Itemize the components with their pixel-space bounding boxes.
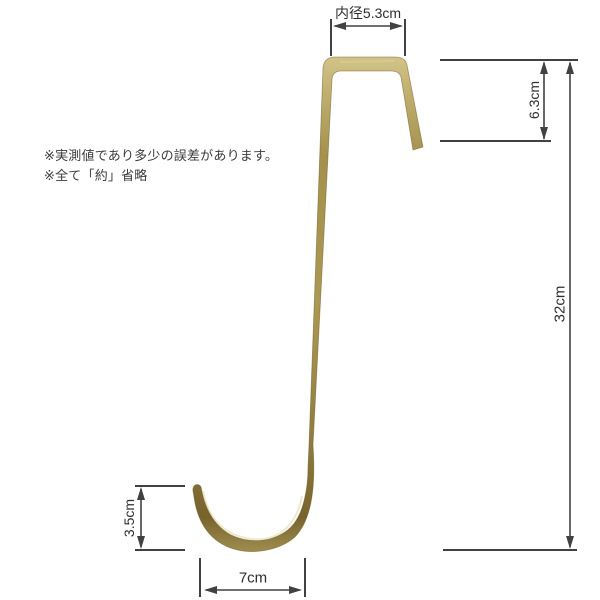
brass-highlight-top [340, 61, 394, 62]
diagram-canvas [0, 0, 600, 600]
dim-hook-opening-lines [135, 486, 185, 550]
dim-label-inner-width: 内径5.3cm [335, 3, 401, 23]
dim-label-top-depth: 6.3cm [526, 81, 542, 119]
dim-label-total-height: 32cm [552, 286, 569, 323]
brass-hook-outline [193, 57, 423, 552]
product-dimension-diagram: 内径5.3cm 6.3cm 32cm 3.5cm 7cm ※実測値であり多少の誤… [0, 0, 600, 600]
dim-top-depth-lines [440, 60, 578, 141]
brass-hook-image [193, 57, 423, 552]
measurement-notes: ※実測値であり多少の誤差があります。 ※全て「約」省略 [44, 146, 278, 186]
measurement-note-line2: ※全て「約」省略 [44, 166, 278, 186]
dim-inner-width-lines [331, 19, 405, 56]
measurement-note-line1: ※実測値であり多少の誤差があります。 [44, 146, 278, 166]
dim-label-hook-width: 7cm [239, 570, 267, 587]
dim-label-hook-opening-height: 3.5cm [121, 499, 137, 537]
